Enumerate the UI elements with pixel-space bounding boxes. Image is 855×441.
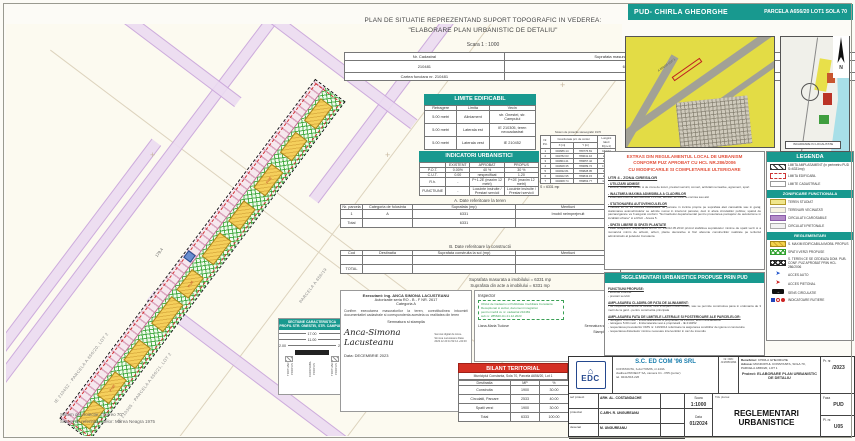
data-label: Data [695,415,702,419]
project-info-cell: Beneficiar: CHIRLA GHEORGHE Adresa: MUNI… [739,357,821,394]
dim-left: 2.00 [279,344,286,348]
topbar-project-name: PUD- CHIRLA GHEORGHE [634,9,728,16]
ind-cell: FUNCTIUNE [420,187,446,196]
constructii-panel: B. Date referitoare la constructii CodDe… [340,244,620,274]
label-trotuar-right: TROTUAR PROPUS [330,358,338,380]
company-name: S.C. ED COM '96 SRL [616,359,715,365]
extras-s3-text: - fiecare lot isi va rezolva necesitatil… [608,206,761,222]
regpud-a1: - se respecta alinierea la strada, fara … [608,305,761,313]
handwritten-signature: Anca-Simona Lacusteanu [344,328,431,348]
topbar: PUD- CHIRLA GHEORGHE PARCELA A656/20 LOT… [628,4,853,20]
limite-cell: IE 210452 [489,137,535,150]
ind-cell: P+2E (maxim 12 metri) [504,178,538,187]
titlu-value: REGLEMENTARI URBANISTICE [715,409,818,427]
zoning-blob [823,93,832,105]
acces-auto-icon: ➤ [770,271,786,278]
limite-cell: 5.00 metri [425,124,457,137]
reference-note: Sistem de referinta cotelor: Marea Neagr… [60,419,155,426]
faza-cell: Faza PUD [821,394,855,416]
extras-s2-text: - inaltimea maxima admisa este P+1-2E, t… [608,196,761,200]
extras-s4-text: - este obligatorie respectarea HCJC nr. … [608,227,761,239]
teren-studiat-swatch [770,199,786,205]
edificabila-imobil-swatch [770,241,786,247]
reglementari-title: REGLEMENTARI [767,232,853,240]
limita-edificabil-swatch [770,173,786,179]
cadastral-cf: Cartea funciara nr. 210481 [345,73,505,81]
indicatori-panel: INDICATORI URBANISTICI EXISTENT APROBAT … [419,151,539,196]
legend-label: LIMITA AMPLASAMENT (in perimetru PUD S=6… [788,163,850,171]
regpud-l4: - respectarea distantelor minime necesar… [608,330,761,334]
inspector-box: Inspector Oficiul de Cadastru si Publici… [474,290,620,362]
north-arrow-icon: N [833,36,849,78]
legend-label: LIMITE CADASTRALE [788,182,820,186]
legend-label: TEREN STUDIAT [788,200,813,204]
dim-mid: 11.00 [308,338,317,342]
street-section-title: SECTIUNE CARACTERISTICA PROFIL STR. ONES… [279,319,345,330]
cf-nr: 210481 [435,74,448,79]
regpud-f2: - prestari servicii [608,295,761,299]
scale-cell: Scara 1:1000 [685,394,713,409]
limite-cell: 5.00 metri [425,111,457,124]
north-letter: N [833,65,849,71]
dim-total: 17.00 [308,332,317,336]
length-dimension: 179.4 [154,247,164,258]
limite-cell: str. Onestei, str. Campului [489,111,535,124]
bcpi-stamp-label: Stampila BCPI [478,330,616,334]
teren-panel: A. Date referitoare la teren Nr. parcela… [340,198,620,228]
section-title-2: PROFIL STR. ONESTEI, STR. CAMPULUI [279,324,345,328]
circulatii-pietonale-swatch [770,223,786,229]
role-signature-cell [661,424,685,439]
teren-caption: A. Date referitoare la teren [340,198,620,203]
role-name: ARH. AL. COSTANDACHE [599,394,661,409]
executant-date: Data: DECEMBRIE 2023 [344,353,468,358]
legend-title: LEGENDA [767,152,853,162]
pr-label: Pr. nr. [823,359,854,363]
building-label: P+2E [186,280,194,288]
role-name: M. UNGUREANU [599,424,661,439]
street-section-box: SECTIUNE CARACTERISTICA PROFIL STR. ONES… [278,318,346,395]
coords-caption: Sistem de proiectie stereografic 1970 [540,130,616,134]
ind-cell: Locuinte insiruite / Prestari servicii [504,187,538,196]
indicatori-title: INDICATORI URBANISTICI [419,151,539,162]
limite-cell: IE 210305, teren neocadastrat [489,124,535,137]
utr-label: UTR 4 - ZONA CIRESILOR [608,175,761,180]
bilant-title: BILANT TERITORIAL [458,363,568,373]
bilant-table: DestinatiaMP% Construita190030.00 Circul… [458,380,569,422]
regpud-title: REGLEMENTARI URBANISTICE PROPUSE PRIN PU… [605,273,764,283]
role-name: C.ARH. R. UNGUREANU [599,409,661,424]
carriageway-bar [295,350,329,355]
role-label: sef proiect [569,394,599,409]
pl-label: Pl. nr. [823,418,831,422]
limite-edificabil-panel: LIMITE EDIFICABIL Retragere Limita Vecin… [424,94,536,150]
cadastral-table: Nr. Cadastral Suprafata masurata a imobi… [344,52,855,81]
building-label: P+2E [265,176,273,184]
zonificare-title: ZONIFICARE FUNCTIONALA [767,190,853,198]
legend-label: ACCES PIETONAL [788,282,816,286]
limite-cadastrale-swatch [770,181,786,187]
constructii-caption: B. Date referitoare la constructii [340,244,620,249]
acces-pietonal-icon: ➤ [770,280,786,287]
proiect-value: ELABORARE PLAN URBANISTIC DE DETALIU [757,372,817,381]
role-signature-cell [661,409,685,424]
ind-h-existent: EXISTENT [446,163,470,168]
acts-area: Suprafata din acte a imobilului = 6331 m… [400,283,620,289]
legend-label: S. TEREN CE SE CEDEAZA DOM. PUB. CONF. P… [788,257,850,269]
signature-label: Semnatura si stampila [344,320,468,324]
spatii-verzi-swatch [770,249,786,255]
extras-rlu-panel: EXTRAS DIN REGULAMENTUL LOCAL DE URBANIS… [604,151,765,270]
pr-value: /2023 [823,365,854,371]
inspector-label: Inspector [478,293,616,298]
cadastral-h-nr: Nr. Cadastral [345,53,505,61]
map-notes: Sistem de proiectie: "Stereo 70" Sistem … [60,412,155,426]
plansa-number-cell: Pl. nr. U05 [821,416,855,438]
limite-cell: Aliniament [457,111,489,124]
ind-cell: Locuinte insiruite / Prestari servicii [470,187,504,196]
executant-box: Executant: Ing. ANCA SIMONA LACUSTEANU A… [340,290,472,412]
main-title: PLAN DE SITUATIE REPREZENTAND SUPORT TOP… [340,16,626,48]
teren-cedat-swatch [770,260,786,266]
circulatii-carosabile-swatch [770,215,786,221]
ocpi-stamp: Oficiul de Cadastru si Publicitate Imobi… [478,300,564,320]
limite-table: Retragere Limita Vecin 5.00 metri Alinia… [424,105,536,150]
limite-cell: Laterala vest [457,137,489,150]
zone-location-map: A 656/20 LOT 1 [625,36,775,148]
regpud-panel: REGLEMENTARI URBANISTICE PROPUSE PRIN PU… [604,272,765,356]
limite-cell: 5.00 metri [425,137,457,150]
date-cell: Data 01/2024 [685,409,713,438]
constructii-table: CodDestinatia Suprafata construita la so… [340,250,621,274]
extras-title-3: CU MODIFICARILE SI COMPLETARILE ULTERIOA… [608,167,761,173]
faza-label: Faza [823,396,830,400]
coords-h-len: Lungimi laturi D(i,i+1) [597,136,615,149]
limite-title: LIMITE EDIFICABIL [424,94,536,105]
indicatoare-rutiere-icon [770,298,786,302]
sens-circulatie-icon: → [770,289,786,296]
label-carosabil: CAROSABIL PROPUS [308,358,316,380]
survey-cross: + [385,150,390,160]
role-signature-cell [661,394,685,409]
role-label: proiectat [569,409,599,424]
scara-label: Scara [694,396,702,400]
area-summary: Suprafata masurata a imobilului = 6331 m… [400,277,620,290]
zoning-blob [819,115,829,124]
stamp-line: sub nr. 285620 din 21.12.2023 [481,314,561,318]
executant-confirm: Confirm executarea masuratorilor la tere… [344,309,468,317]
logo-cell: ⌂ EDC [569,357,613,394]
legend-label: ACCES AUTO [788,273,809,277]
ind-cell: R.h. [420,178,446,187]
title-line-1: PLAN DE SITUATIE REPREZENTAND SUPORT TOP… [340,16,626,26]
extras-s1-text: - locuire, dotari de cartier si de zona … [608,186,761,190]
pl-value: U05 [823,424,854,430]
company-cell: S.C. ED COM '96 SRL CONSTANTA, b-dul TOM… [613,357,719,394]
bilant-panel: BILANT TERITORIAL Municipiul Constanta, … [458,363,568,422]
topbar-parcel: PARCELA A656/20 LOT1 SOLA 70 [764,9,847,15]
legend-label: TERENURI VECINATATI [788,208,823,212]
legend-label: CIRCULATII PIETONALE [788,224,824,228]
logo-text: EDC [581,374,599,383]
plan-sheet: + + + + + + P+2E P+2E P+2E IE 210452 [0,0,855,441]
survey-cross: + [150,150,155,160]
cadastral-nr: 210481 [345,61,505,73]
limita-amplasament-swatch [770,164,786,170]
projection-note: Sistem de proiectie: "Stereo 70" [60,412,155,419]
city-map-caption: INCADRARE IN LOCALITATE [785,141,841,149]
label-trotuar-left: TROTUAR PROPUS [286,358,294,380]
legend-panel: LEGENDA LIMITA AMPLASAMENT (in perimetru… [766,151,854,341]
scara-value: 1:1000 [685,402,712,408]
survey-cross: + [560,80,565,90]
titlu-label: Titlu plansa: [715,395,818,399]
project-number-cell: Pr. nr. /2023 [821,357,855,394]
title-block: ⌂ EDC S.C. ED COM '96 SRL CONSTANTA, b-d… [568,356,855,437]
indicatori-table: EXISTENT APROBAT PROPUS P.O.T. 0.00% 40 … [419,162,539,196]
ind-cell: - [446,178,470,187]
inspector-name: Liana-Maria Tudose [478,324,509,328]
ind-cell: - [446,187,470,196]
data-value: 01/2024 [685,421,712,427]
terenuri-vecinatati-swatch [770,207,786,213]
drawing-title-cell: Titlu plansa: REGLEMENTARI URBANISTICE [713,394,821,438]
proiect-label: Proiect: [742,372,756,376]
legend-label: SENS CIRCULATIE [788,291,816,295]
inset-urban-area [676,95,753,148]
legend-label: SPATII VERZI PROPUSE [788,250,824,254]
executant-cat: Categoria A [344,302,468,306]
teren-table: Nr. parcelaCategoria de folosinta Supraf… [340,204,621,228]
faza-value: PUD [823,402,854,408]
digital-signature-note: Semnat digital de Anca-Simona Lacusteanu… [434,333,468,343]
title-line-2: "ELABORARE PLAN URBANISTIC DE DETALIU" [340,26,626,36]
scale-label: Scara 1 : 1000 [340,42,626,48]
ind-cell: P+1-2E (maxim 12 metri) [470,178,504,187]
legend-label: LIMITA EDIFICABIL [788,174,816,178]
bilant-subtitle: Municipiul Constanta, Sola 70, Parcela A… [458,373,568,380]
limite-cell: Laterala est [457,124,489,137]
coords-h-nr: Nr. Pct. [541,136,551,149]
legend-label: CIRCULATII CAROSABILE [788,216,827,220]
street-section-drawing: 17.00 11.00 2.002.00 TROTUAR PROPUS CARO… [279,332,345,394]
role-label: desenat [569,424,599,439]
edc-logo: ⌂ EDC [576,361,606,389]
company-addr-3: tel. 0241/616.226 [616,375,715,379]
cf-label: Cartea funciara nr. [401,74,434,79]
company-reg-cell: Nr. ORC J13/695/1994 [719,357,739,394]
building-label: P+2E [108,384,116,392]
legend-label: INDICATOARE RUTIERE [788,298,824,302]
legend-label: S. MAXIM EDIFICABILA IMOBIL PROPUS [788,242,848,246]
